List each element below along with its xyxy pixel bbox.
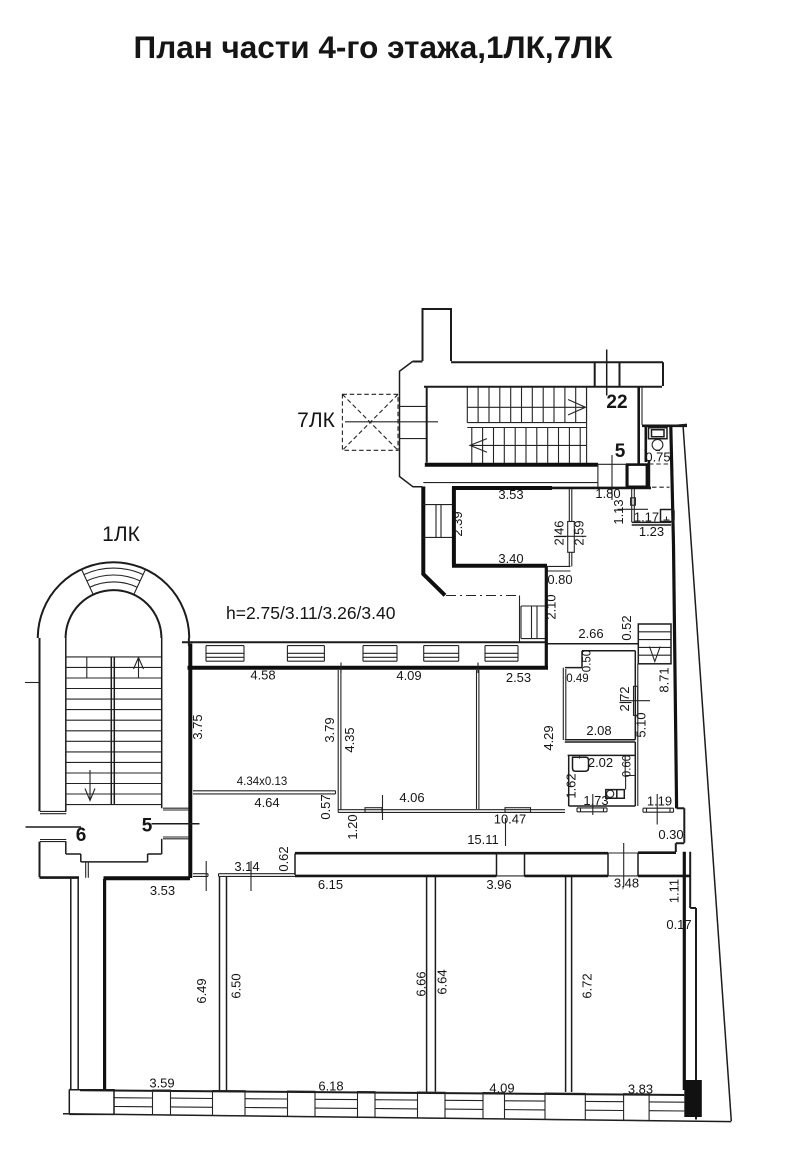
svg-text:0.57: 0.57 [318, 794, 333, 819]
svg-text:6.49: 6.49 [194, 978, 209, 1003]
svg-text:3.59: 3.59 [149, 1076, 174, 1091]
svg-text:1.17: 1.17 [634, 510, 659, 525]
svg-text:2|72: 2|72 [617, 686, 632, 711]
svg-text:1.11: 1.11 [667, 879, 682, 903]
svg-text:2.53: 2.53 [506, 670, 531, 685]
svg-text:1.23: 1.23 [639, 524, 664, 539]
svg-text:4.58: 4.58 [250, 668, 275, 683]
svg-text:3.53: 3.53 [498, 487, 523, 502]
svg-text:1.20: 1.20 [345, 814, 360, 839]
svg-text:7ЛК: 7ЛК [297, 409, 335, 432]
svg-text:0.80: 0.80 [547, 572, 572, 587]
svg-text:1ЛК: 1ЛК [102, 523, 140, 546]
svg-text:6.66: 6.66 [414, 971, 429, 996]
svg-text:3.53: 3.53 [150, 883, 175, 898]
svg-text:2.08: 2.08 [586, 723, 611, 738]
svg-text:4.29: 4.29 [541, 725, 556, 750]
svg-text:План части 4-го этажа,1ЛК,7ЛК: План части 4-го этажа,1ЛК,7ЛК [134, 29, 614, 65]
svg-text:6.15: 6.15 [318, 877, 343, 892]
svg-text:2.66: 2.66 [578, 626, 603, 641]
svg-text:6.64: 6.64 [435, 969, 450, 994]
svg-text:0.17: 0.17 [666, 917, 691, 932]
svg-text:5: 5 [142, 816, 153, 837]
svg-text:0.52: 0.52 [619, 615, 634, 640]
svg-text:0.75: 0.75 [645, 450, 670, 465]
svg-text:6.50: 6.50 [229, 973, 244, 998]
svg-text:0.62: 0.62 [276, 846, 291, 871]
svg-text:0.50: 0.50 [582, 650, 594, 672]
svg-text:h=2.75/3.11/3.26/3.40: h=2.75/3.11/3.26/3.40 [226, 603, 396, 623]
svg-text:3,48: 3,48 [614, 876, 639, 891]
svg-text:6.72: 6.72 [580, 973, 595, 998]
svg-text:1.62: 1.62 [564, 773, 579, 798]
svg-text:2.59: 2.59 [572, 520, 587, 545]
svg-text:2|46: 2|46 [552, 520, 567, 545]
svg-text:4.64: 4.64 [254, 795, 279, 810]
svg-text:0.49: 0.49 [566, 673, 588, 685]
svg-text:6: 6 [76, 825, 87, 846]
svg-text:3.75: 3.75 [190, 714, 205, 739]
svg-text:1.19: 1.19 [647, 794, 672, 809]
svg-text:22: 22 [606, 392, 627, 413]
svg-text:10.47: 10.47 [494, 812, 527, 827]
svg-text:0.30: 0.30 [658, 827, 683, 842]
svg-text:15.11: 15.11 [467, 832, 499, 847]
svg-text:3.14: 3.14 [234, 859, 259, 874]
svg-text:1.73: 1.73 [583, 793, 608, 808]
svg-text:4.06: 4.06 [399, 790, 424, 805]
svg-text:4.35: 4.35 [342, 727, 357, 752]
svg-text:2.02: 2.02 [588, 755, 613, 770]
svg-text:3.40: 3.40 [498, 551, 523, 566]
svg-text:3.96: 3.96 [486, 877, 511, 892]
svg-text:4.09: 4.09 [396, 668, 421, 683]
svg-text:1.13: 1.13 [611, 499, 626, 524]
svg-text:2.39: 2.39 [450, 511, 465, 536]
svg-text:8.71: 8.71 [657, 667, 672, 692]
svg-text:4.34х0.13: 4.34х0.13 [237, 776, 288, 788]
svg-text:3.79: 3.79 [322, 717, 337, 742]
svg-text:5: 5 [615, 441, 626, 462]
svg-text:0.60: 0.60 [622, 755, 634, 777]
